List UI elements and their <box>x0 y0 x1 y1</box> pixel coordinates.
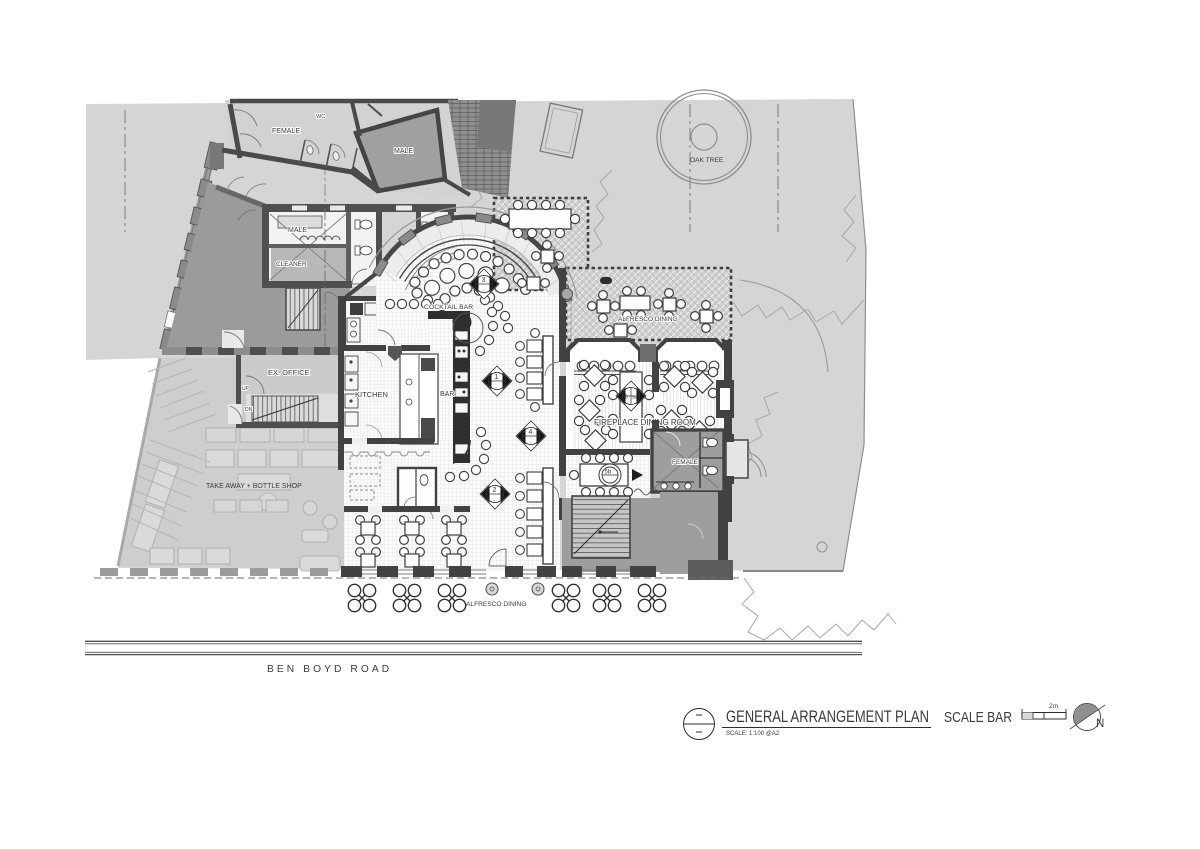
svg-text:MALE: MALE <box>394 148 413 155</box>
svg-text:UP: UP <box>242 386 250 392</box>
svg-text:ALFRESCO DINING: ALFRESCO DINING <box>466 601 526 608</box>
svg-text:SCALE BAR: SCALE BAR <box>944 709 1012 726</box>
svg-text:OAK TREE: OAK TREE <box>690 157 724 164</box>
svg-text:MALE: MALE <box>288 227 307 234</box>
svg-text:EX. OFFICE: EX. OFFICE <box>268 368 310 377</box>
svg-text:1: 1 <box>495 374 499 381</box>
svg-text:2m: 2m <box>1049 703 1059 710</box>
svg-text:COCKTAIL BAR: COCKTAIL BAR <box>424 304 473 311</box>
svg-text:5a: 5a <box>632 395 638 400</box>
svg-text:KITCHEN: KITCHEN <box>355 390 388 399</box>
svg-text:3: 3 <box>482 277 486 284</box>
svg-text:BAR: BAR <box>440 391 454 398</box>
svg-text:BEN BOYD ROAD: BEN BOYD ROAD <box>267 664 392 675</box>
svg-text:CLEANER: CLEANER <box>276 261 307 268</box>
svg-text:TAKE AWAY + BOTTLE SHOP: TAKE AWAY + BOTTLE SHOP <box>206 483 302 490</box>
svg-text:FEMALE: FEMALE <box>272 128 300 135</box>
svg-text:6: 6 <box>625 395 628 401</box>
svg-text:2: 2 <box>493 487 497 494</box>
svg-text:N: N <box>1096 718 1104 730</box>
svg-text:ALFRESCO DINING: ALFRESCO DINING <box>618 316 678 323</box>
svg-text:4: 4 <box>529 429 533 436</box>
svg-text:SCALE: 1:100 @A2: SCALE: 1:100 @A2 <box>726 731 780 737</box>
svg-text:5b: 5b <box>605 470 612 476</box>
svg-text:FEMALE: FEMALE <box>672 459 699 466</box>
svg-text:DN: DN <box>245 407 253 413</box>
svg-text:GENERAL ARRANGEMENT PLAN: GENERAL ARRANGEMENT PLAN <box>726 708 929 726</box>
svg-text:FIREPLACE DINING ROOM: FIREPLACE DINING ROOM <box>594 418 696 427</box>
svg-text:WC: WC <box>316 114 325 120</box>
